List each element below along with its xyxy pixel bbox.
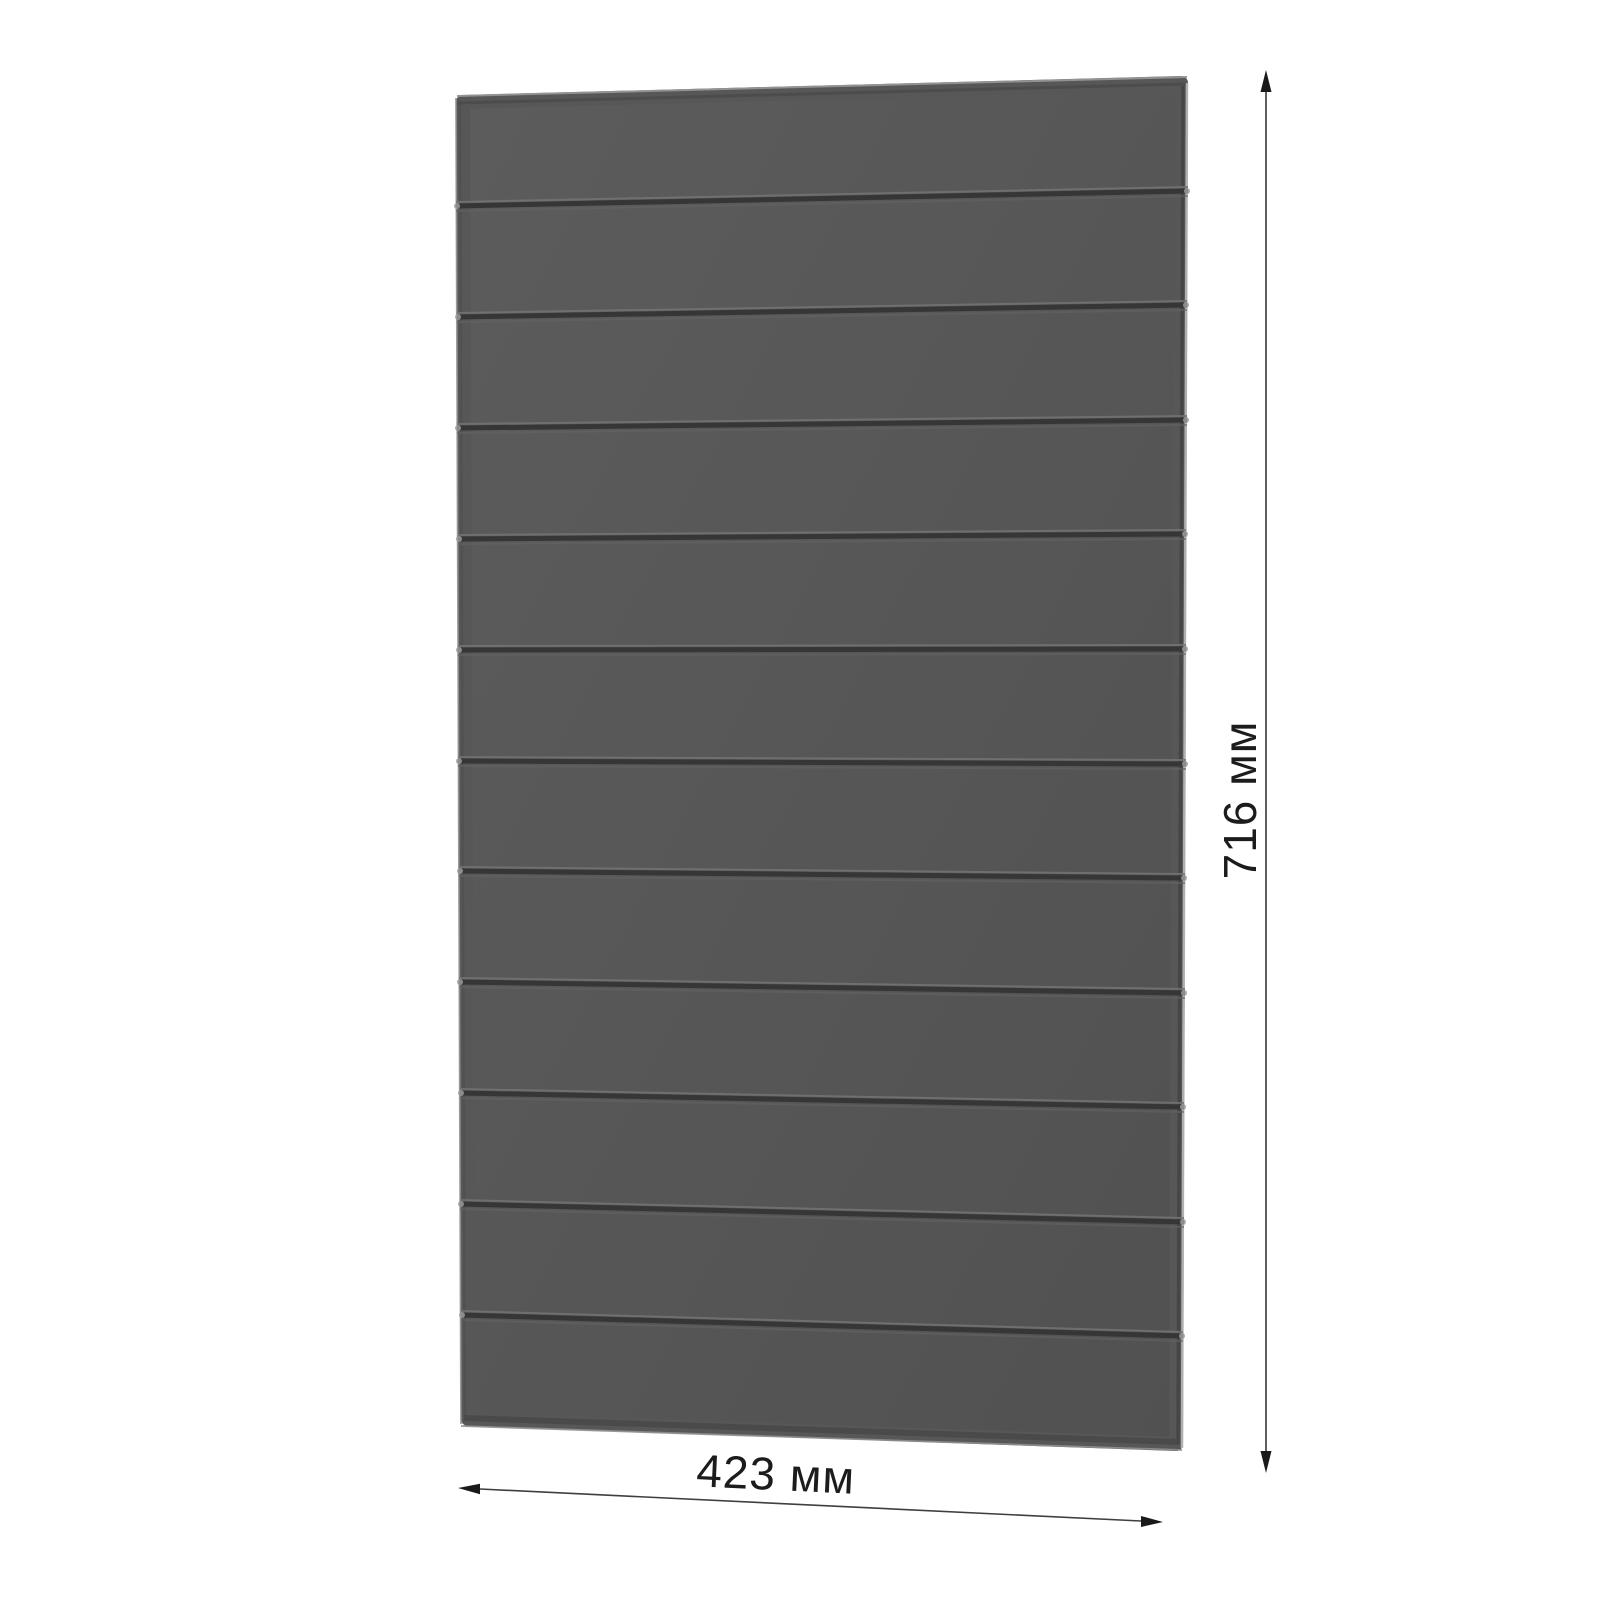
canvas: 716 мм 423 мм xyxy=(0,0,1600,1600)
panel-dimension-diagram: 716 мм 423 мм xyxy=(0,0,1600,1600)
height-dimension-label: 716 мм xyxy=(1214,721,1266,880)
arrow-right-icon xyxy=(1141,1516,1163,1527)
arrow-down-icon xyxy=(1261,1451,1272,1473)
arrow-left-icon xyxy=(458,1484,480,1495)
panel xyxy=(454,77,1190,1450)
arrow-up-icon xyxy=(1261,70,1272,92)
width-dimension: 423 мм xyxy=(458,1444,1163,1527)
height-dimension: 716 мм xyxy=(1214,70,1272,1473)
width-dimension-label: 423 мм xyxy=(695,1444,856,1503)
